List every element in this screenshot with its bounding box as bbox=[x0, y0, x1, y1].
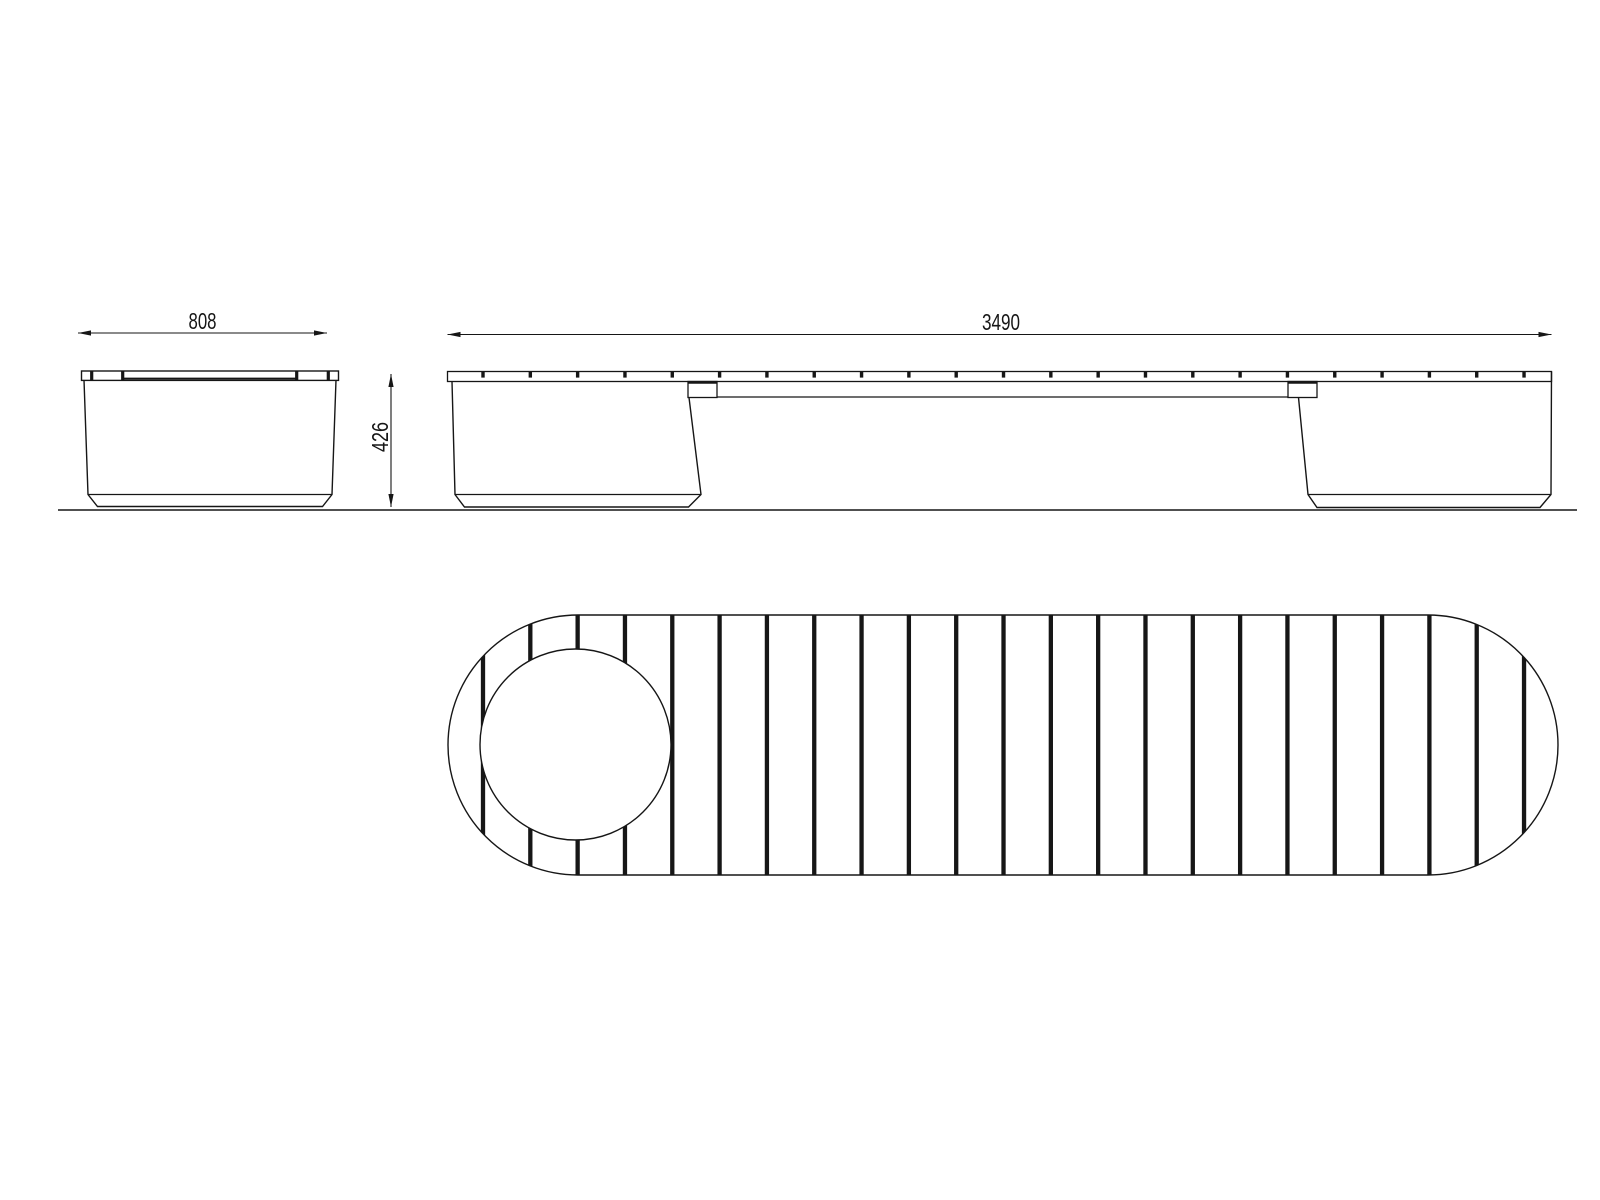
bench-technical-drawing: 808 3490 426 bbox=[0, 0, 1600, 1200]
dimension-end-width: 808 bbox=[78, 308, 327, 336]
dimension-text-height: 426 bbox=[367, 422, 393, 452]
side-view-seat-band bbox=[448, 372, 1552, 382]
planter-circle bbox=[480, 649, 671, 840]
arrowhead-down-icon bbox=[388, 494, 393, 507]
end-view-body bbox=[84, 380, 336, 507]
side-view-right-bracket bbox=[1288, 382, 1317, 398]
side-view-left-bracket bbox=[688, 382, 717, 398]
side-band-ticks bbox=[483, 372, 1524, 378]
technical-drawing-page: 808 3490 426 bbox=[0, 0, 1600, 1200]
arrowhead-left-icon bbox=[448, 332, 461, 337]
bracket-box bbox=[688, 382, 717, 398]
dimension-overall-length: 3490 bbox=[448, 309, 1552, 337]
arrowhead-left-icon bbox=[78, 330, 91, 335]
end-view bbox=[82, 371, 339, 507]
dimension-height: 426 bbox=[367, 374, 394, 507]
arrowhead-right-icon bbox=[1539, 332, 1552, 337]
plan-view bbox=[448, 613, 1558, 877]
side-view-left-leg bbox=[452, 382, 701, 508]
bracket-box bbox=[1288, 382, 1317, 398]
dimension-text-end-width: 808 bbox=[189, 308, 217, 334]
arrowhead-up-icon bbox=[388, 374, 393, 387]
arrowhead-right-icon bbox=[314, 330, 327, 335]
dimension-text-overall-length: 3490 bbox=[982, 309, 1020, 335]
side-view bbox=[58, 372, 1577, 511]
side-view-right-leg bbox=[1299, 372, 1552, 508]
